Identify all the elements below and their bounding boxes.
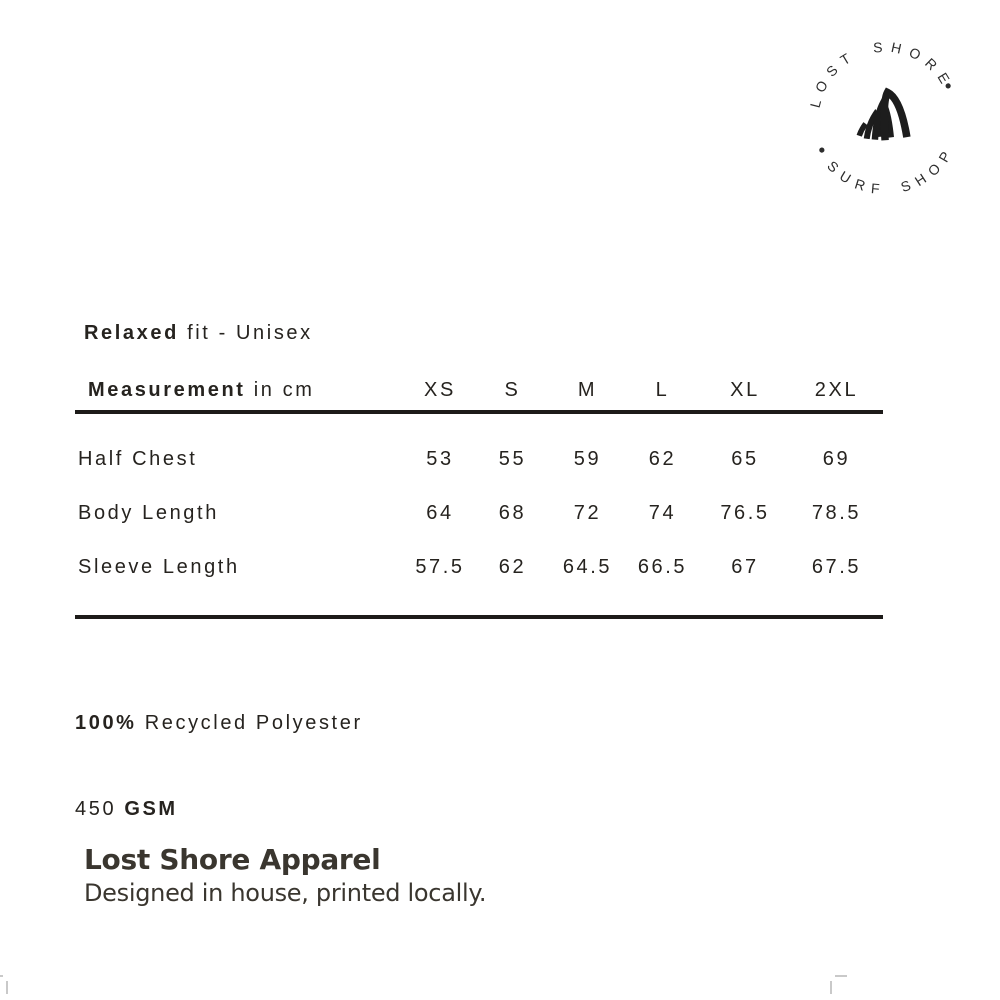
size-value-cell: 67 <box>700 556 790 579</box>
size-value-cell: 65 <box>700 448 790 471</box>
logo-arc-text-bottom: SURF SHOP <box>823 141 963 206</box>
size-value-cell: 69 <box>790 448 883 471</box>
table-row: Half Chest 53 55 59 62 65 69 <box>75 432 883 486</box>
wave-icon <box>854 91 907 144</box>
fabric-info: 100% Recycled Polyester 450 GSM <box>75 652 363 852</box>
row-label: Sleeve Length <box>75 556 405 579</box>
badge-dot-left <box>819 147 825 153</box>
size-column-header-l: L <box>625 379 700 402</box>
size-column-header-s: S <box>475 379 550 402</box>
footer-tagline: Designed in house, printed locally. <box>84 877 486 910</box>
row-label: Half Chest <box>75 448 405 471</box>
measurement-table: Measurement in cm XS S M L XL 2XL Half C… <box>75 370 883 619</box>
table-body: Half Chest 53 55 59 62 65 69 Body Length… <box>75 414 883 594</box>
logo-badge: LOST SHORE SURF SHOP <box>772 5 998 231</box>
fit-rest-label: fit - Unisex <box>179 322 313 344</box>
corner-mark-bottom-right-horizontal <box>835 975 847 977</box>
size-value-cell: 78.5 <box>790 502 883 525</box>
size-column-header-xl: XL <box>700 379 790 402</box>
size-value-cell: 62 <box>625 448 700 471</box>
fit-description: Relaxed fit - Unisex <box>84 320 313 346</box>
corner-mark-bottom-left-vertical <box>6 981 8 994</box>
table-rule-bottom <box>75 615 883 619</box>
size-value-cell: 57.5 <box>405 556 475 579</box>
size-value-cell: 59 <box>550 448 625 471</box>
footer-brand-title: Lost Shore Apparel <box>84 843 486 877</box>
fit-type-label: Relaxed <box>84 322 179 344</box>
logo-arc-text-top: LOST SHORE <box>799 29 958 112</box>
table-row: Body Length 64 68 72 74 76.5 78.5 <box>75 486 883 540</box>
footer-brand-block: Lost Shore Apparel Designed in house, pr… <box>84 843 486 910</box>
fabric-weight-line: 450 GSM <box>75 795 363 824</box>
size-value-cell: 64 <box>405 502 475 525</box>
size-value-cell: 72 <box>550 502 625 525</box>
table-header-row: Measurement in cm XS S M L XL 2XL <box>75 370 883 410</box>
size-value-cell: 62 <box>475 556 550 579</box>
size-value-cell: 68 <box>475 502 550 525</box>
size-value-cell: 66.5 <box>625 556 700 579</box>
size-column-header-2xl: 2XL <box>790 379 883 402</box>
fabric-material-line: 100% Recycled Polyester <box>75 709 363 738</box>
corner-mark-bottom-left-horizontal <box>0 975 3 977</box>
size-value-cell: 55 <box>475 448 550 471</box>
size-column-header-xs: XS <box>405 379 475 402</box>
row-label: Body Length <box>75 502 405 525</box>
size-value-cell: 64.5 <box>550 556 625 579</box>
table-header-label: Measurement in cm <box>75 379 405 402</box>
size-column-header-m: M <box>550 379 625 402</box>
table-row: Sleeve Length 57.5 62 64.5 66.5 67 67.5 <box>75 540 883 594</box>
size-value-cell: 76.5 <box>700 502 790 525</box>
corner-mark-bottom-right-vertical <box>830 981 832 994</box>
size-value-cell: 67.5 <box>790 556 883 579</box>
size-value-cell: 53 <box>405 448 475 471</box>
size-value-cell: 74 <box>625 502 700 525</box>
